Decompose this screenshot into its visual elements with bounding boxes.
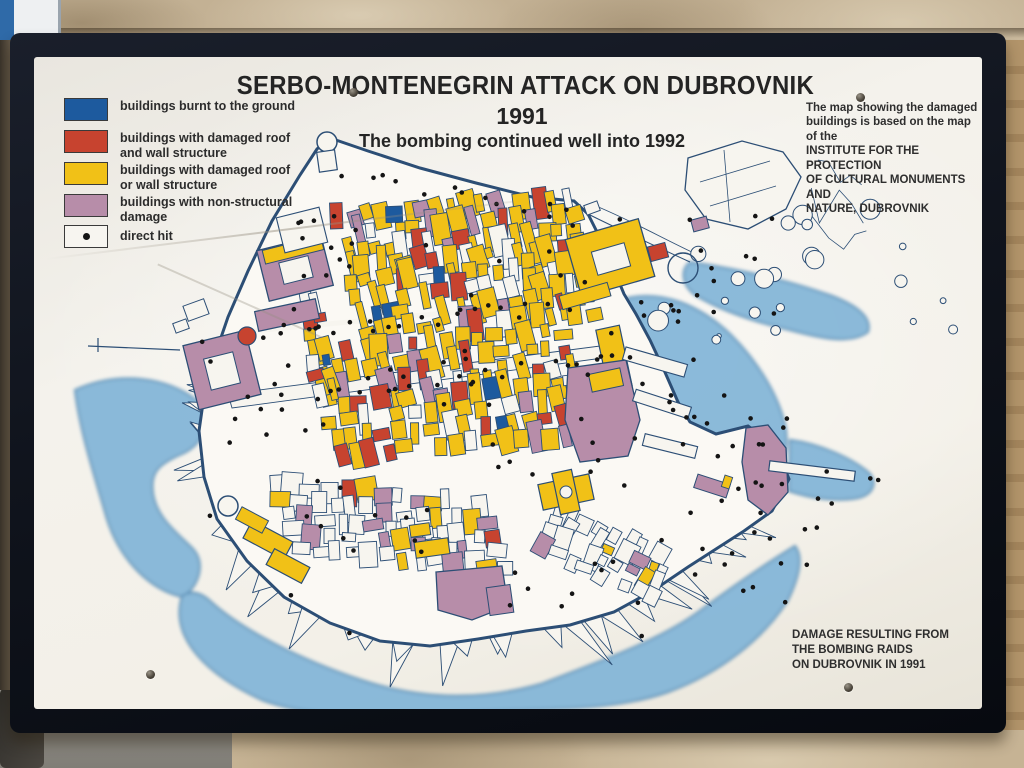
legend-label: buildings burnt to the ground bbox=[120, 98, 295, 114]
legend-swatch-nonstructural bbox=[64, 194, 108, 217]
damage-caption: DAMAGE RESULTING FROM THE BOMBING RAIDS … bbox=[792, 628, 982, 673]
screw bbox=[856, 93, 865, 102]
legend-swatch-burnt bbox=[64, 98, 108, 121]
direct-hit-dot-icon bbox=[83, 233, 90, 240]
legend-item-nonstructural: buildings with non-structural damage bbox=[64, 194, 292, 225]
legend-swatch-direct-hit bbox=[64, 225, 108, 248]
title-block: SERBO-MONTENEGRIN ATTACK ON DUBROVNIK 19… bbox=[212, 70, 832, 152]
screw bbox=[844, 683, 853, 692]
legend-item-roof: buildings with damaged roof or wall stru… bbox=[64, 162, 290, 193]
title-year: 1991 bbox=[212, 103, 832, 130]
legend-item-roof-wall: buildings with damaged roof and wall str… bbox=[64, 130, 290, 161]
adjacent-sign-blue-stripe bbox=[0, 0, 14, 40]
legend-swatch-roof bbox=[64, 162, 108, 185]
source-note: The map showing the damaged buildings is… bbox=[806, 101, 984, 217]
legend-label: buildings with damaged roof or wall stru… bbox=[120, 162, 290, 193]
screw bbox=[349, 88, 358, 97]
legend-swatch-roof-wall bbox=[64, 130, 108, 153]
legend-label: buildings with non-structural damage bbox=[120, 194, 292, 225]
legend-label: direct hit bbox=[120, 225, 173, 244]
screw bbox=[146, 670, 155, 679]
title-subtitle: The bombing continued well into 1992 bbox=[212, 131, 832, 152]
legend-label: buildings with damaged roof and wall str… bbox=[120, 130, 290, 161]
page-title: SERBO-MONTENEGRIN ATTACK ON DUBROVNIK bbox=[237, 70, 807, 101]
legend-item-burnt: buildings burnt to the ground bbox=[64, 98, 295, 121]
